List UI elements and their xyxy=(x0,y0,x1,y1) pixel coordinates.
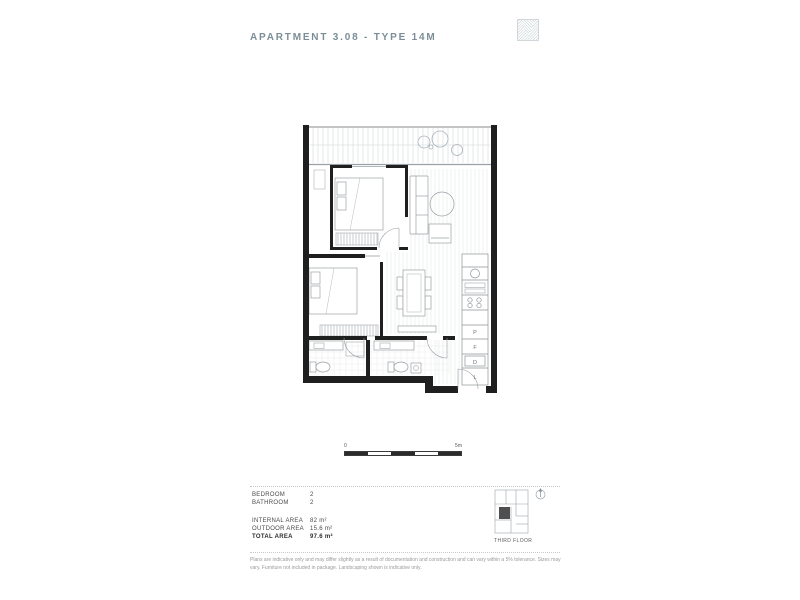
legend-row-bedroom: BEDROOM 2 xyxy=(252,491,392,499)
armchair xyxy=(429,224,451,243)
toilet-icon xyxy=(316,362,330,372)
scale-start-label: 0 xyxy=(344,443,347,449)
label-pantry: P xyxy=(473,330,477,336)
toilet-tank xyxy=(310,362,316,372)
floorplan-page: APARTMENT 3.08 - TYPE 14M xyxy=(0,0,800,600)
divider-top xyxy=(250,486,560,487)
legend-row-internal-area: INTERNAL AREA 82 m² xyxy=(252,517,392,525)
toilet-tank xyxy=(388,362,394,372)
sofa xyxy=(410,176,428,234)
balcony-decking xyxy=(310,128,490,163)
page-title: APARTMENT 3.08 - TYPE 14M xyxy=(250,32,437,43)
label-laundry: L xyxy=(473,375,476,381)
dining-table xyxy=(397,270,431,316)
floor-label: THIRD FLOOR xyxy=(494,538,532,544)
floor-plan: P F D L xyxy=(300,112,500,394)
disclaimer-text: Plans are indicative only and may differ… xyxy=(250,557,562,572)
scale-bar: 0 5m xyxy=(344,443,462,456)
bathroom2-fixtures xyxy=(374,341,421,373)
wardrobe-2 xyxy=(320,325,378,336)
legend-row-bathroom: BATHROOM 2 xyxy=(252,499,392,507)
label-dryer: D xyxy=(473,360,477,366)
bed-2 xyxy=(309,268,357,314)
legend-row-total-area: TOTAL AREA 97.6 m² xyxy=(252,533,392,541)
divider-bottom xyxy=(250,552,560,553)
scale-end-label: 5m xyxy=(455,443,462,449)
legend-row-outdoor-area: OUTDOOR AREA 15.6 m² xyxy=(252,525,392,533)
toilet-icon xyxy=(394,362,408,372)
tree-icons xyxy=(418,131,463,156)
north-arrow-icon xyxy=(534,487,547,500)
brand-logo-icon xyxy=(517,19,539,41)
scale-bar-graphic xyxy=(344,451,462,456)
round-table xyxy=(430,192,454,216)
legend: BEDROOM 2 BATHROOM 2 INTERNAL AREA 82 m²… xyxy=(252,491,392,541)
wardrobe-1 xyxy=(336,233,378,245)
apartment-location-highlight xyxy=(499,507,510,519)
bed-1 xyxy=(335,178,383,230)
balcony-planter xyxy=(314,170,325,189)
tv-bench xyxy=(398,326,436,332)
key-plan xyxy=(494,488,530,536)
